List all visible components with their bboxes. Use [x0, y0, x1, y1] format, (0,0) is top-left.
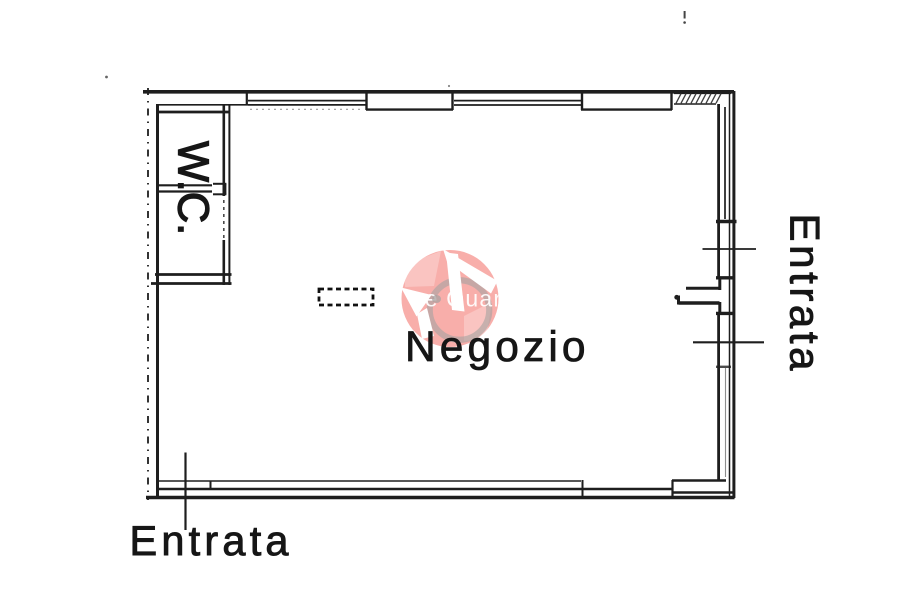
svg-text:ve Quart: ve Quart [412, 286, 510, 312]
svg-text:Entrata: Entrata [782, 214, 829, 375]
svg-text:Negozio: Negozio [405, 324, 590, 371]
svg-text:Entrata: Entrata [130, 517, 293, 564]
svg-text:W.C.: W.C. [169, 141, 217, 235]
